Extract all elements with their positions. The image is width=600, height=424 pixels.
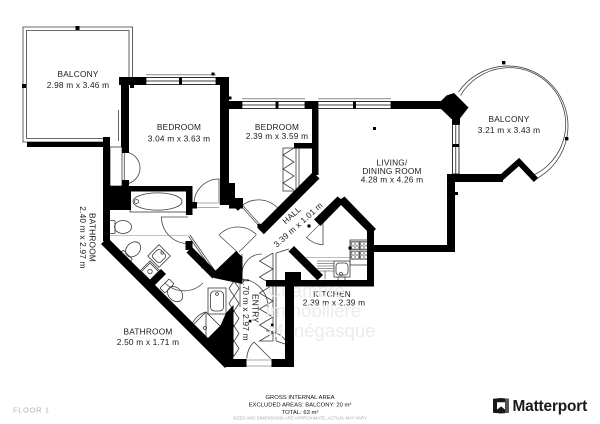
- svg-text:2.39 m x 3.59 m: 2.39 m x 3.59 m: [246, 131, 309, 141]
- svg-text:BATHROOM: BATHROOM: [124, 327, 173, 337]
- svg-text:Monégasque: Monégasque: [268, 320, 376, 341]
- svg-text:FLOOR 1: FLOOR 1: [13, 406, 50, 415]
- svg-text:SIZES AND DIMENSIONS ARE APPRO: SIZES AND DIMENSIONS ARE APPROXIMATE, AC…: [233, 415, 367, 420]
- svg-text:GROSS INTERNAL AREA: GROSS INTERNAL AREA: [265, 395, 334, 401]
- svg-text:2.40 m x 2.97 m: 2.40 m x 2.97 m: [78, 206, 88, 269]
- svg-text:3.21 m x 3.43 m: 3.21 m x 3.43 m: [478, 125, 541, 135]
- svg-text:Matterport: Matterport: [513, 398, 588, 415]
- svg-text:ENTRY: ENTRY: [251, 294, 261, 323]
- svg-text:BEDROOM: BEDROOM: [157, 122, 201, 132]
- svg-text:BALCONY: BALCONY: [488, 114, 529, 124]
- svg-text:4.28 m x 4.26 m: 4.28 m x 4.26 m: [361, 175, 424, 185]
- svg-text:immobilière: immobilière: [266, 300, 361, 321]
- svg-text:2.98 m x 3.46 m: 2.98 m x 3.46 m: [47, 80, 110, 90]
- svg-text:EXCLUDED AREAS: BALCONY: 20 m²: EXCLUDED AREAS: BALCONY: 20 m²: [249, 403, 352, 409]
- svg-text:2.50 m x 1.71 m: 2.50 m x 1.71 m: [117, 337, 180, 347]
- svg-text:1.70 m x 2.97 m: 1.70 m x 2.97 m: [241, 278, 251, 341]
- svg-text:3.04 m x 3.63 m: 3.04 m x 3.63 m: [148, 134, 211, 144]
- svg-text:BATHROOM: BATHROOM: [88, 213, 98, 262]
- svg-text:BALCONY: BALCONY: [57, 69, 98, 79]
